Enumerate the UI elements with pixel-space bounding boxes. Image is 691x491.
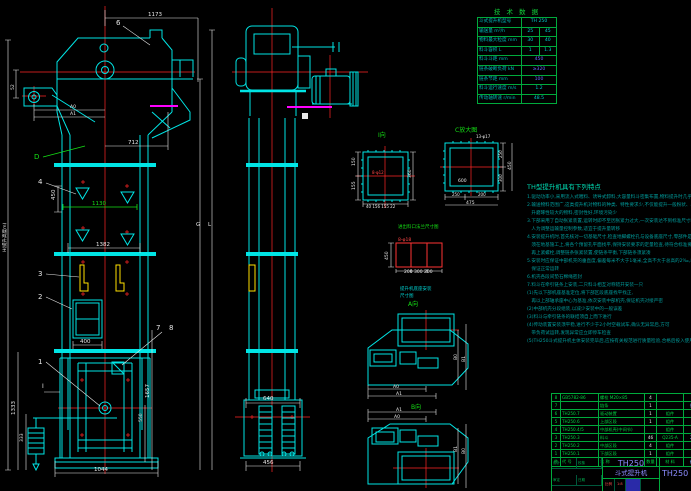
plan-a-dim-a1: A1 bbox=[396, 391, 402, 397]
tech-table-grid: 斗式提升机型号 TH 250 输送量 m³/h 25 45 物料最大粒度 mm … bbox=[477, 17, 557, 104]
dim-a0-front: A0 bbox=[70, 104, 76, 110]
bom-part-name: 中部机壳(中间节) bbox=[599, 426, 645, 433]
bom-note: 外购 bbox=[684, 402, 691, 409]
bom-material bbox=[657, 402, 684, 409]
det1-dim-155: 155 bbox=[351, 181, 357, 190]
bom-note bbox=[684, 410, 691, 417]
bom-note bbox=[684, 450, 691, 457]
tech-label: 斗式提升机型号 bbox=[478, 18, 522, 27]
coupling-disc bbox=[350, 72, 358, 106]
motor-terminal-box bbox=[326, 69, 336, 76]
note-line: 5.安装时应保证中部机壳的垂直度,偏差每米不大于1毫米,全高不大于总高的2‰,以 bbox=[527, 258, 691, 266]
bom-code: TH250.2 bbox=[561, 442, 599, 449]
coupling-lines bbox=[353, 72, 356, 106]
bom-qty bbox=[645, 426, 657, 433]
plan-view-b bbox=[368, 424, 468, 484]
bom-material: 组件 bbox=[657, 410, 684, 417]
red-grid bbox=[396, 243, 442, 267]
det1-dim-150: 150 bbox=[351, 157, 357, 166]
note-line: 6.机壳各段间垫石棉绳密封 bbox=[527, 274, 691, 282]
tech-value: 1.2 bbox=[522, 85, 556, 94]
scale-value: 1:8 bbox=[615, 479, 626, 491]
dim-1333: 1333 bbox=[11, 401, 17, 415]
dim-1173: 1173 bbox=[148, 12, 162, 18]
plan-b-dim-a0: A0 bbox=[394, 414, 400, 420]
plan-a-dim-b0: B0 bbox=[453, 354, 459, 360]
note-line: (5)TH250斗式提升机主体安装完毕后,应按有关规范进行质量检验,合格后投入使… bbox=[527, 338, 691, 346]
plan-b-motor-inner bbox=[376, 432, 394, 442]
tech-value: 1.3 bbox=[539, 47, 557, 56]
bom-note bbox=[684, 426, 691, 433]
tech-label: 链条节距 mm bbox=[478, 76, 522, 85]
plan-view-a bbox=[368, 314, 468, 385]
det3-dim-450: 450 bbox=[384, 251, 390, 260]
det2-dim-r250: 250 bbox=[498, 150, 503, 158]
plan-a-gearbox bbox=[400, 352, 416, 364]
dim-lines-plan-b bbox=[368, 409, 466, 488]
view-label-c: C放大图 bbox=[455, 126, 477, 134]
bom-row: 5 TH250.6 上部区段 1 组件 bbox=[552, 417, 691, 425]
view-label-i: I向 bbox=[378, 131, 386, 139]
dim-1130: 1130 bbox=[92, 201, 106, 207]
plan-a-dim-a0: A0 bbox=[393, 384, 399, 390]
motor-fins bbox=[312, 76, 352, 104]
note-line: (1)先以下部机座基准定位,将下部区段底座找平找正, bbox=[527, 290, 691, 298]
tech-value: 48.5 bbox=[522, 95, 556, 104]
tech-label: 料斗斗距 mm bbox=[478, 56, 522, 65]
bom-qty: 1 bbox=[645, 418, 657, 425]
bom-row: 2 TH250.2 中部区段 4 组件 bbox=[552, 441, 691, 449]
green-annotations bbox=[43, 146, 137, 210]
tech-row: 传动轴转速 r/min 48.5 bbox=[478, 94, 556, 104]
tech-value: 100 bbox=[522, 76, 556, 85]
tech-label: 输送量 m³/h bbox=[478, 28, 522, 37]
bom-code bbox=[561, 402, 599, 409]
head-section-outline bbox=[57, 30, 193, 138]
note-line: 再以上部轴承座中心为基准,依次安装中部机壳,保证机壳对接严密 bbox=[527, 298, 691, 306]
tech-label: 链条破断负荷 kN bbox=[478, 66, 522, 75]
sig-cell: 校核 bbox=[577, 458, 602, 469]
bom-qty: 1 bbox=[645, 402, 657, 409]
sig-cell: 设计 bbox=[552, 458, 577, 469]
section-mark-i: I bbox=[42, 383, 44, 390]
plan-b-outline bbox=[368, 424, 468, 484]
drawing-title: 斗式提升机 bbox=[603, 469, 659, 478]
tech-label: 料斗容积 L bbox=[478, 47, 522, 56]
tech-row: 料斗容积 L 1 1.3 bbox=[478, 46, 556, 56]
bom-no: 4 bbox=[552, 426, 561, 433]
head-bearing-circle bbox=[100, 44, 108, 52]
buckets-yellow bbox=[80, 265, 124, 291]
title-block-signatures: 设计 校核 审定 日期 bbox=[552, 458, 603, 491]
title-block: 设计 校核 审定 日期 TH250 斗式提升机 比例 1:8 TH250 bbox=[551, 457, 691, 491]
bom-part-name: 螺栓 M20×85 bbox=[599, 394, 645, 401]
bom-no: 1 bbox=[552, 450, 561, 457]
bom-part-name: 链条 bbox=[599, 402, 645, 409]
note-line: 2.输送物料范围广,这类提升机对物料的种类、特性要求少,不仅能提升一般粉状、小颗… bbox=[527, 202, 691, 210]
dim-h-lift-height: H(提升高度m) bbox=[1, 222, 8, 252]
tech-value: 45 bbox=[539, 28, 557, 37]
note-line: 7.料斗在牵引链条上安装,二只料斗相互对称错开安装一只 bbox=[527, 282, 691, 290]
bom-row: 1 TH250.1 下部区段 1 组件 bbox=[552, 449, 691, 457]
dim-l: L bbox=[208, 222, 212, 228]
note-line: (3)料斗与牵引链条的联结须自上而下进行 bbox=[527, 314, 691, 322]
tech-row: 料斗运行速度 m/s 1.2 bbox=[478, 84, 556, 94]
sig-cell: 审定 bbox=[552, 475, 577, 486]
bom-part-name: 中部区段 bbox=[599, 442, 645, 449]
bom-material: 组件 bbox=[657, 426, 684, 433]
caption-flange-detail: 进出料口法兰尺寸图 bbox=[398, 223, 439, 230]
plan-b-dim-b0: B0 bbox=[461, 448, 467, 454]
det2-dim-200: 200 bbox=[478, 192, 486, 197]
front-view bbox=[24, 30, 193, 470]
note-line: (2)中部机壳分段组装,以减少安装中的一般误差 bbox=[527, 306, 691, 314]
feed-spout-box bbox=[73, 300, 102, 338]
bom-table: 8 GB5782-86 螺栓 M20×85 4 7 链条 1 外购 6 TH25… bbox=[551, 393, 691, 467]
centerline-red bbox=[20, 6, 503, 488]
det3-dim-bottom: 200 300 200 bbox=[404, 269, 433, 275]
guide-rungs bbox=[259, 412, 295, 448]
bom-no: 2 bbox=[552, 442, 561, 449]
det1-hole-callout: 8-φ12 bbox=[372, 170, 384, 175]
centerlines bbox=[20, 6, 503, 488]
tech-row: 斗式提升机型号 TH 250 bbox=[478, 18, 556, 27]
bom-row: 7 链条 1 外购 bbox=[552, 401, 691, 409]
balloon-3: 3 bbox=[38, 270, 42, 278]
dim-712: 712 bbox=[128, 140, 139, 146]
tech-row: 链条破断负荷 kN ≥320 bbox=[478, 65, 556, 75]
tech-value: 40 bbox=[539, 37, 557, 46]
bom-code: TH250.7 bbox=[561, 410, 599, 417]
bom-code: TH250.3 bbox=[561, 434, 599, 441]
bom-part-name: 料斗 bbox=[599, 434, 645, 441]
bom-qty: 1 bbox=[645, 450, 657, 457]
bom-no: 8 bbox=[552, 394, 561, 401]
tech-row: 链条节距 mm 100 bbox=[478, 75, 556, 85]
balloon-1: 1 bbox=[38, 358, 42, 366]
bom-qty: 1 bbox=[645, 410, 657, 417]
det2-hole-callout: 13-φ17 bbox=[476, 134, 491, 139]
balloon-4: 4 bbox=[38, 178, 43, 186]
bom-note bbox=[684, 442, 691, 449]
det2-dim-r300: 300 bbox=[498, 174, 503, 182]
bom-note bbox=[684, 418, 691, 425]
drawing-model: TH250 bbox=[603, 458, 659, 469]
bom-no: 6 bbox=[552, 410, 561, 417]
balloon-7: 7 bbox=[156, 324, 160, 332]
dim-550: 550 bbox=[138, 413, 144, 422]
cad-drawing-canvas: 1173 6 A0 A1 52 D 712 4 450 1130 1382 3 … bbox=[0, 0, 691, 491]
note-line: 升磨琢性较大的物料,密封性好,环境污染少 bbox=[527, 210, 691, 218]
bom-qty: 4 bbox=[645, 394, 657, 401]
det1-dim-bottom: 40 156 155 22 bbox=[366, 204, 396, 209]
bom-qty: 46 bbox=[645, 434, 657, 441]
tech-value: 1 bbox=[522, 47, 539, 56]
bom-no: 5 bbox=[552, 418, 561, 425]
bom-material bbox=[657, 394, 684, 401]
plan-b-dim-a1: A1 bbox=[396, 407, 402, 413]
dim-lines-detail-i bbox=[355, 152, 416, 207]
balloon-8: 8 bbox=[169, 324, 173, 332]
balloon-6: 6 bbox=[116, 19, 121, 27]
bom-part-name: 驱动装置 bbox=[599, 410, 645, 417]
plan-a-motor-inner bbox=[374, 354, 392, 362]
scale-label: 比例 bbox=[603, 479, 615, 491]
det2-dim-475: 475 bbox=[466, 200, 475, 206]
notes-title: TH型提升机具有下列特点 bbox=[527, 182, 691, 192]
inspection-door bbox=[112, 362, 124, 374]
dim-456: 456 bbox=[263, 460, 274, 466]
tech-value: ≥320 bbox=[522, 66, 556, 75]
det2-dim-600: 600 bbox=[458, 178, 467, 184]
dim-g: G bbox=[196, 222, 200, 228]
tech-row: 料斗斗距 mm 450 bbox=[478, 55, 556, 65]
tech-row: 输送量 m³/h 25 45 bbox=[478, 27, 556, 37]
bom-part-name: 下部区段 bbox=[599, 450, 645, 457]
bom-material: 组件 bbox=[657, 450, 684, 457]
tech-value: TH 250 bbox=[522, 18, 556, 27]
note-line: 再上紧螺栓,调整链条张紧装置,使链条平衡,下部链条须紧凑 bbox=[527, 250, 691, 258]
plan-a-coupling bbox=[418, 358, 438, 368]
sig-cell: 日期 bbox=[577, 475, 602, 486]
bom-code: TH250.4/5 bbox=[561, 426, 599, 433]
note-line: 须在地基施工上,将各个预留孔平面找平,保持安装要求的定量检查,待符合标准要求后方… bbox=[527, 242, 691, 250]
bom-note bbox=[684, 394, 691, 401]
drive-shaft-rod bbox=[292, 42, 339, 52]
bom-material: 组件 bbox=[657, 418, 684, 425]
platform-legs bbox=[250, 91, 296, 116]
dim-1044: 1044 bbox=[94, 467, 108, 473]
tech-label: 物料最大粒度 mm bbox=[478, 37, 522, 46]
note-line: (4)传动装置安装须平稳,进行不少于2小时空载试车,确认无异常后,方可 bbox=[527, 322, 691, 330]
scale-row: 比例 1:8 bbox=[603, 478, 659, 491]
title-block-center: TH250 斗式提升机 比例 1:8 bbox=[603, 458, 660, 491]
side-bucket-yellow bbox=[249, 265, 255, 291]
technical-data-table: 技 术 数 据 斗式提升机型号 TH 250 输送量 m³/h 25 45 物料… bbox=[477, 7, 557, 104]
dim-400: 400 bbox=[80, 339, 91, 345]
view-label-a: A向 bbox=[408, 300, 418, 308]
bom-row: 3 TH250.3 料斗 46 Q235-A 205 bbox=[552, 433, 691, 441]
label-d: D bbox=[34, 153, 39, 161]
dim-450: 450 bbox=[51, 189, 57, 200]
bom-no: 7 bbox=[552, 402, 561, 409]
caption-base-2: 尺寸图 bbox=[400, 292, 414, 299]
side-view bbox=[236, 26, 358, 458]
dim-333: 333 bbox=[19, 433, 25, 442]
note-line: 带负荷试运转,发现异常应立即停车检查 bbox=[527, 330, 691, 338]
dim-lines-front bbox=[5, 10, 215, 477]
det1-dim-360: 360 bbox=[407, 169, 413, 178]
dim-a1-front: A1 bbox=[70, 111, 76, 117]
tech-label: 料斗运行速度 m/s bbox=[478, 85, 522, 94]
drawing-number: TH250 bbox=[660, 458, 691, 491]
dim-640: 640 bbox=[263, 396, 274, 402]
bom-note: 205 bbox=[684, 434, 691, 441]
note-line: 保证正常运转 bbox=[527, 266, 691, 274]
tech-label: 传动轴转速 r/min bbox=[478, 95, 522, 104]
det3-hole-callout: 8-φ18 bbox=[398, 237, 411, 243]
dim-1657: 1657 bbox=[145, 384, 151, 398]
caption-base-1: 提升机底座安装 bbox=[400, 285, 432, 292]
ucs-marker bbox=[302, 113, 308, 119]
plan-b-dim-b1: B1 bbox=[453, 446, 459, 452]
tech-value: 450 bbox=[522, 56, 556, 65]
highlight-chip bbox=[626, 479, 641, 491]
bom-code: TH250.6 bbox=[561, 418, 599, 425]
bom-row: 6 TH250.7 驱动装置 1 组件 bbox=[552, 409, 691, 417]
bom-qty: 4 bbox=[645, 442, 657, 449]
note-line: 4.安装提升机时,首先核对一切基础尺寸,检查地脚螺栓孔与设备底座尺寸,零部件是否… bbox=[527, 234, 691, 242]
note-line: 3.下部采用了自动张紧装置,运转时即不至因张紧力过大,一次安装达不到标准尺寸时,… bbox=[527, 218, 691, 226]
tech-value: 25 bbox=[522, 28, 539, 37]
notes-block: TH型提升机具有下列特点 1.驱动功率小,采用流入式喂料、诱导式卸料,大容量料斗… bbox=[527, 182, 691, 392]
det2-dim-250: 250 bbox=[452, 192, 460, 197]
tech-row: 物料最大粒度 mm 30 40 bbox=[478, 36, 556, 46]
bom-material: 组件 bbox=[657, 442, 684, 449]
balloon-2: 2 bbox=[38, 293, 42, 301]
motor-body bbox=[312, 76, 350, 104]
bom-part-name: 上部区段 bbox=[599, 418, 645, 425]
bom-code: TH250.1 bbox=[561, 450, 599, 457]
discharge-opening-detail bbox=[396, 243, 442, 267]
leader-d-green bbox=[43, 146, 85, 157]
tech-value: 30 bbox=[522, 37, 539, 46]
dim-1382: 1382 bbox=[96, 242, 110, 248]
det2-dim-450: 450 bbox=[507, 161, 513, 170]
note-line: 1.驱动功率小,采用流入式喂料、诱导式卸料,大容量料斗密集布置,物料提升时几乎无… bbox=[527, 194, 691, 202]
note-line: 人为调整运输量控制参数,适宜于提升量转移 bbox=[527, 226, 691, 234]
plan-b-coupling bbox=[418, 436, 438, 446]
tech-table-title: 技 术 数 据 bbox=[477, 7, 557, 17]
plan-b-gearbox bbox=[400, 430, 416, 442]
bom-material: Q235-A bbox=[657, 434, 684, 441]
bom-row: 4 TH250.4/5 中部机壳(中间节) 组件 bbox=[552, 425, 691, 433]
view-label-b: B向 bbox=[411, 403, 421, 411]
bom-grid: 8 GB5782-86 螺栓 M20×85 4 7 链条 1 外购 6 TH25… bbox=[551, 393, 691, 467]
bom-no: 3 bbox=[552, 434, 561, 441]
bom-code: GB5782-86 bbox=[561, 394, 599, 401]
plan-a-dim-b1: B1 bbox=[461, 356, 467, 362]
dim-52: 52 bbox=[10, 84, 16, 90]
bom-row: 8 GB5782-86 螺栓 M20×85 4 bbox=[552, 394, 691, 401]
